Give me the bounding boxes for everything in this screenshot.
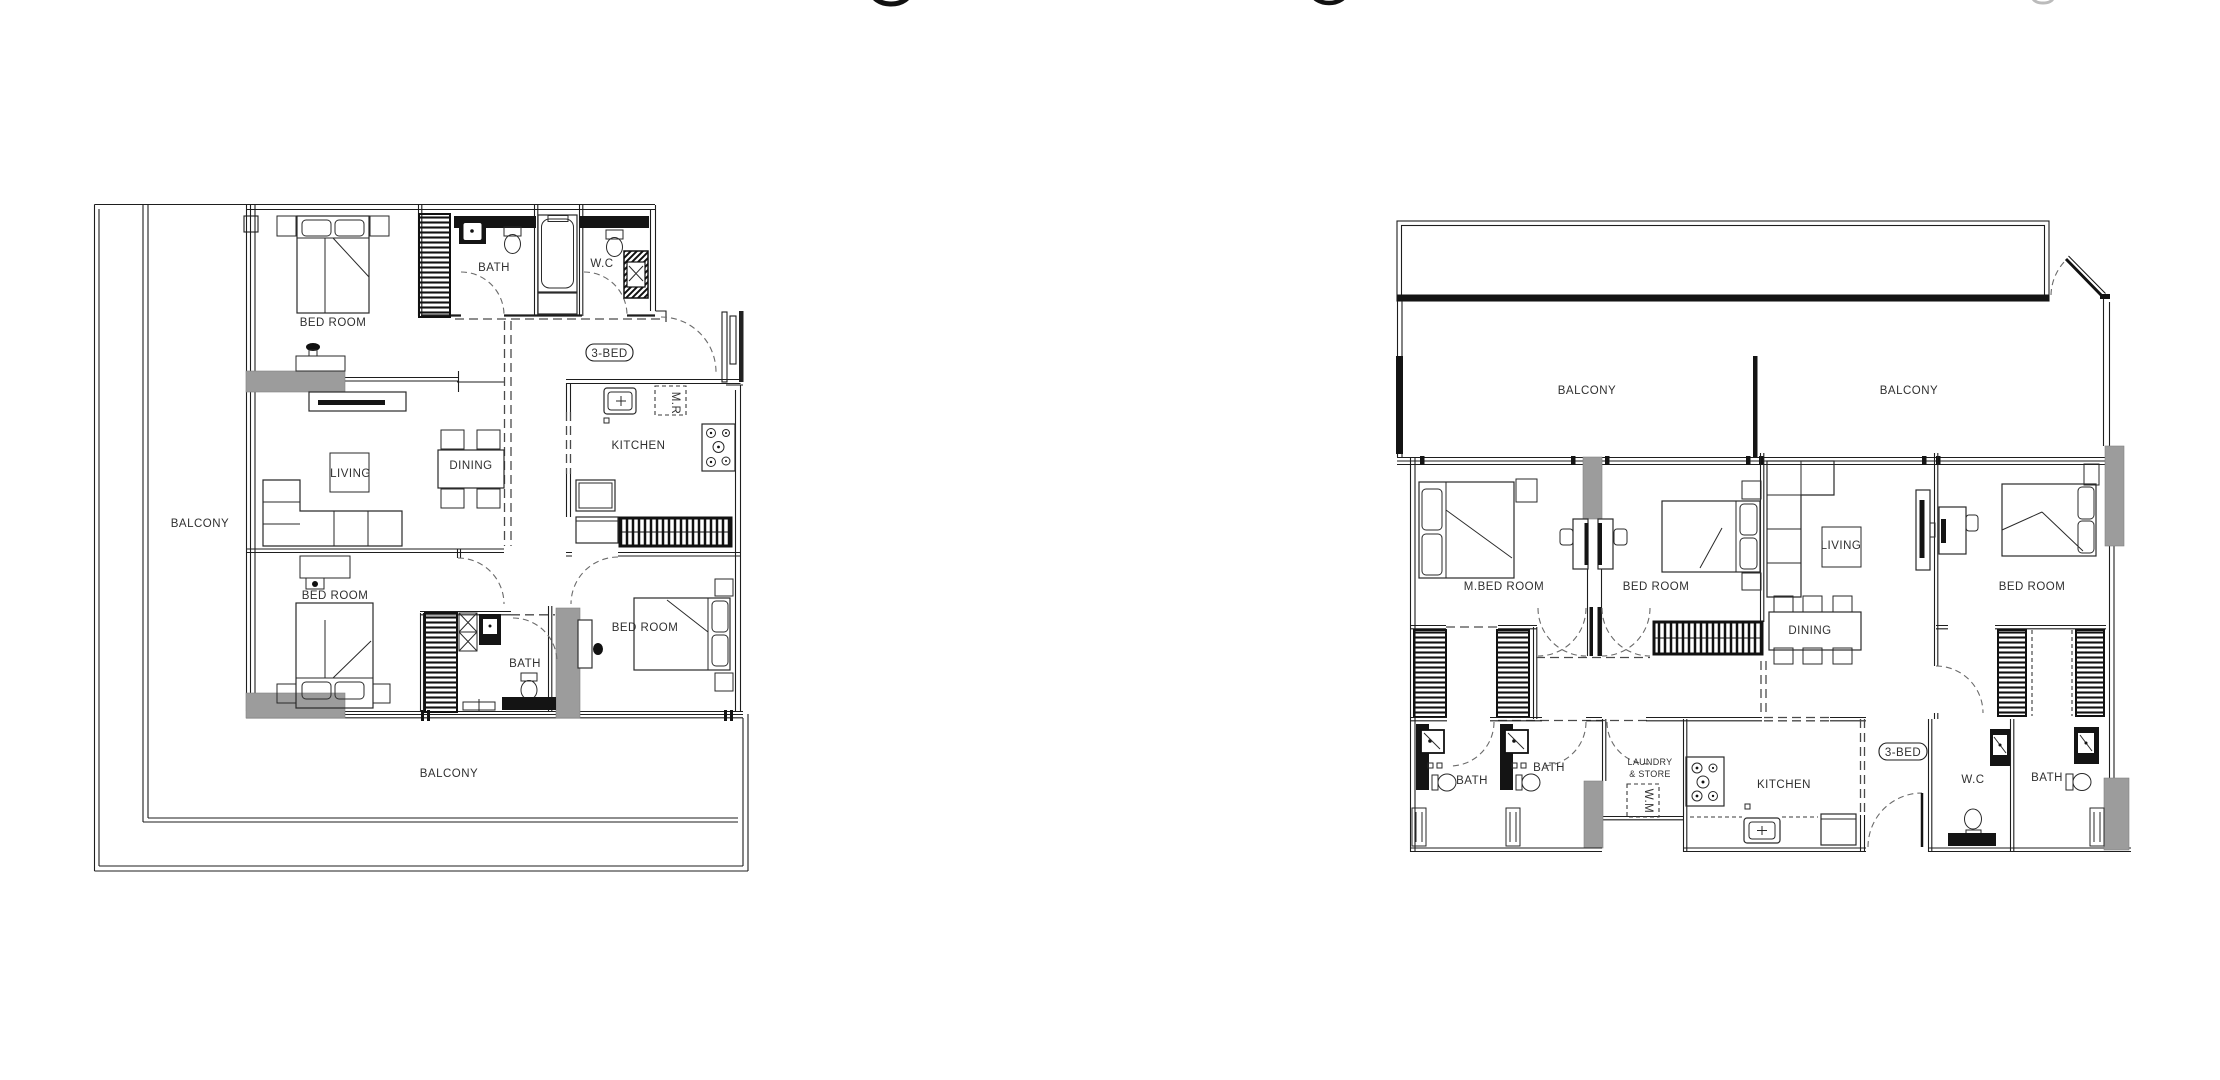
svg-text:BED ROOM: BED ROOM (302, 590, 369, 602)
svg-text:W.C: W.C (1961, 774, 1984, 786)
svg-text:M.R: M.R (669, 392, 681, 415)
svg-text:BALCONY: BALCONY (1558, 385, 1616, 397)
svg-text:BALCONY: BALCONY (171, 518, 229, 530)
svg-text:BED ROOM: BED ROOM (300, 317, 367, 329)
svg-text:3-BED: 3-BED (1885, 747, 1921, 759)
svg-text:BATH: BATH (478, 262, 510, 274)
svg-text:W.M: W.M (1642, 789, 1654, 814)
svg-text:BED ROOM: BED ROOM (1999, 581, 2066, 593)
svg-text:BATH: BATH (2031, 772, 2063, 784)
svg-text:BALCONY: BALCONY (420, 768, 478, 780)
svg-text:BATH: BATH (1456, 775, 1488, 787)
svg-text:W.C: W.C (590, 258, 613, 270)
svg-text:KITCHEN: KITCHEN (612, 440, 666, 452)
svg-text:M.BED ROOM: M.BED ROOM (1464, 581, 1544, 593)
svg-text:DINING: DINING (449, 460, 492, 472)
svg-text:BED ROOM: BED ROOM (1623, 581, 1690, 593)
svg-text:LIVING: LIVING (1821, 540, 1862, 552)
svg-text:BED ROOM: BED ROOM (612, 622, 679, 634)
svg-text:BALCONY: BALCONY (1880, 385, 1938, 397)
svg-text:DINING: DINING (1788, 625, 1831, 637)
svg-text:& STORE: & STORE (1629, 769, 1670, 779)
svg-text:3-BED: 3-BED (591, 348, 627, 360)
svg-text:KITCHEN: KITCHEN (1757, 779, 1811, 791)
svg-text:LAUNDRY: LAUNDRY (1628, 757, 1673, 767)
svg-text:LIVING: LIVING (330, 468, 371, 480)
svg-text:BATH: BATH (509, 658, 541, 670)
svg-text:BATH: BATH (1533, 762, 1565, 774)
